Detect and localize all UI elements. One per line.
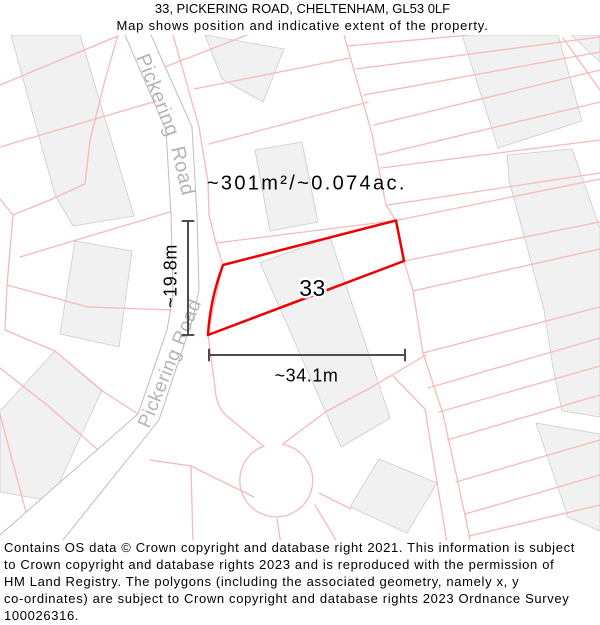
svg-text:~19.8m: ~19.8m: [161, 244, 181, 308]
svg-text:~301m²/~0.074ac.: ~301m²/~0.074ac.: [207, 173, 407, 195]
svg-text:~34.1m: ~34.1m: [275, 366, 339, 386]
svg-text:33: 33: [299, 275, 326, 301]
